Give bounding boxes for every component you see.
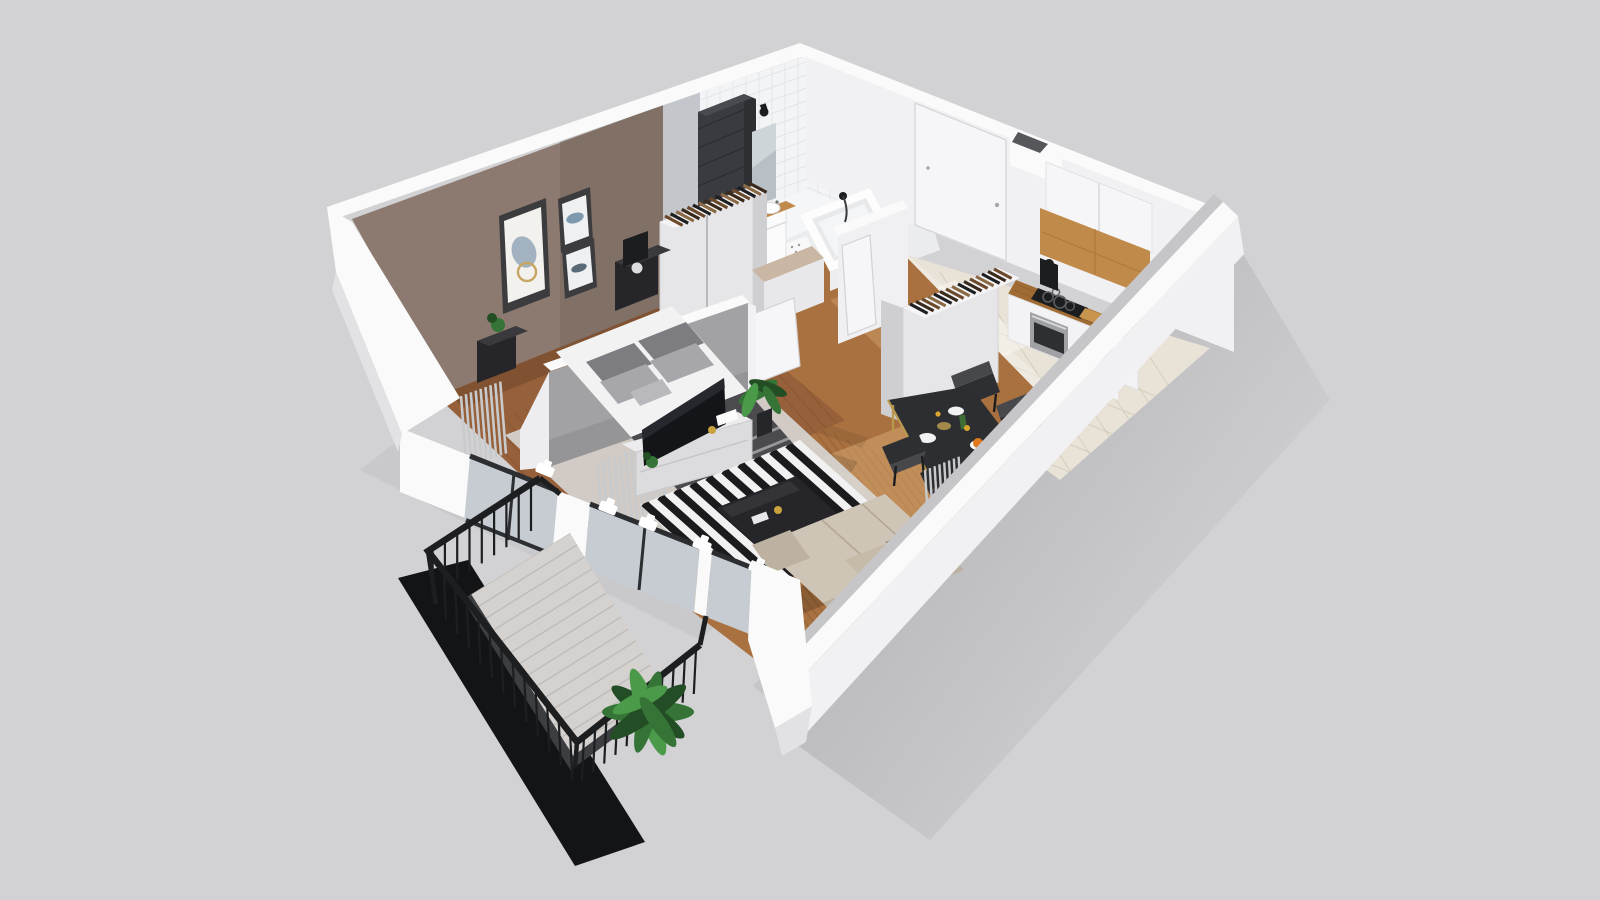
door-handle: [995, 203, 999, 207]
vanity-faucet: [775, 200, 778, 203]
gold-bowl: [937, 422, 951, 430]
rail-post: [575, 742, 577, 768]
glass: [964, 425, 970, 431]
cup: [708, 426, 716, 434]
bathroom-door: [842, 235, 876, 335]
plant-icon: [643, 452, 651, 460]
floorplan-render: Photorealistic 3D cutaway floor plan of …: [0, 0, 1600, 900]
floorplan-stage: Photorealistic 3D cutaway floor plan of …: [0, 0, 1600, 900]
plant-icon: [487, 313, 497, 323]
lamp-base: [632, 263, 643, 274]
door-peephole: [926, 166, 930, 170]
plate: [948, 407, 964, 416]
cup: [774, 506, 782, 514]
glass: [935, 411, 940, 416]
